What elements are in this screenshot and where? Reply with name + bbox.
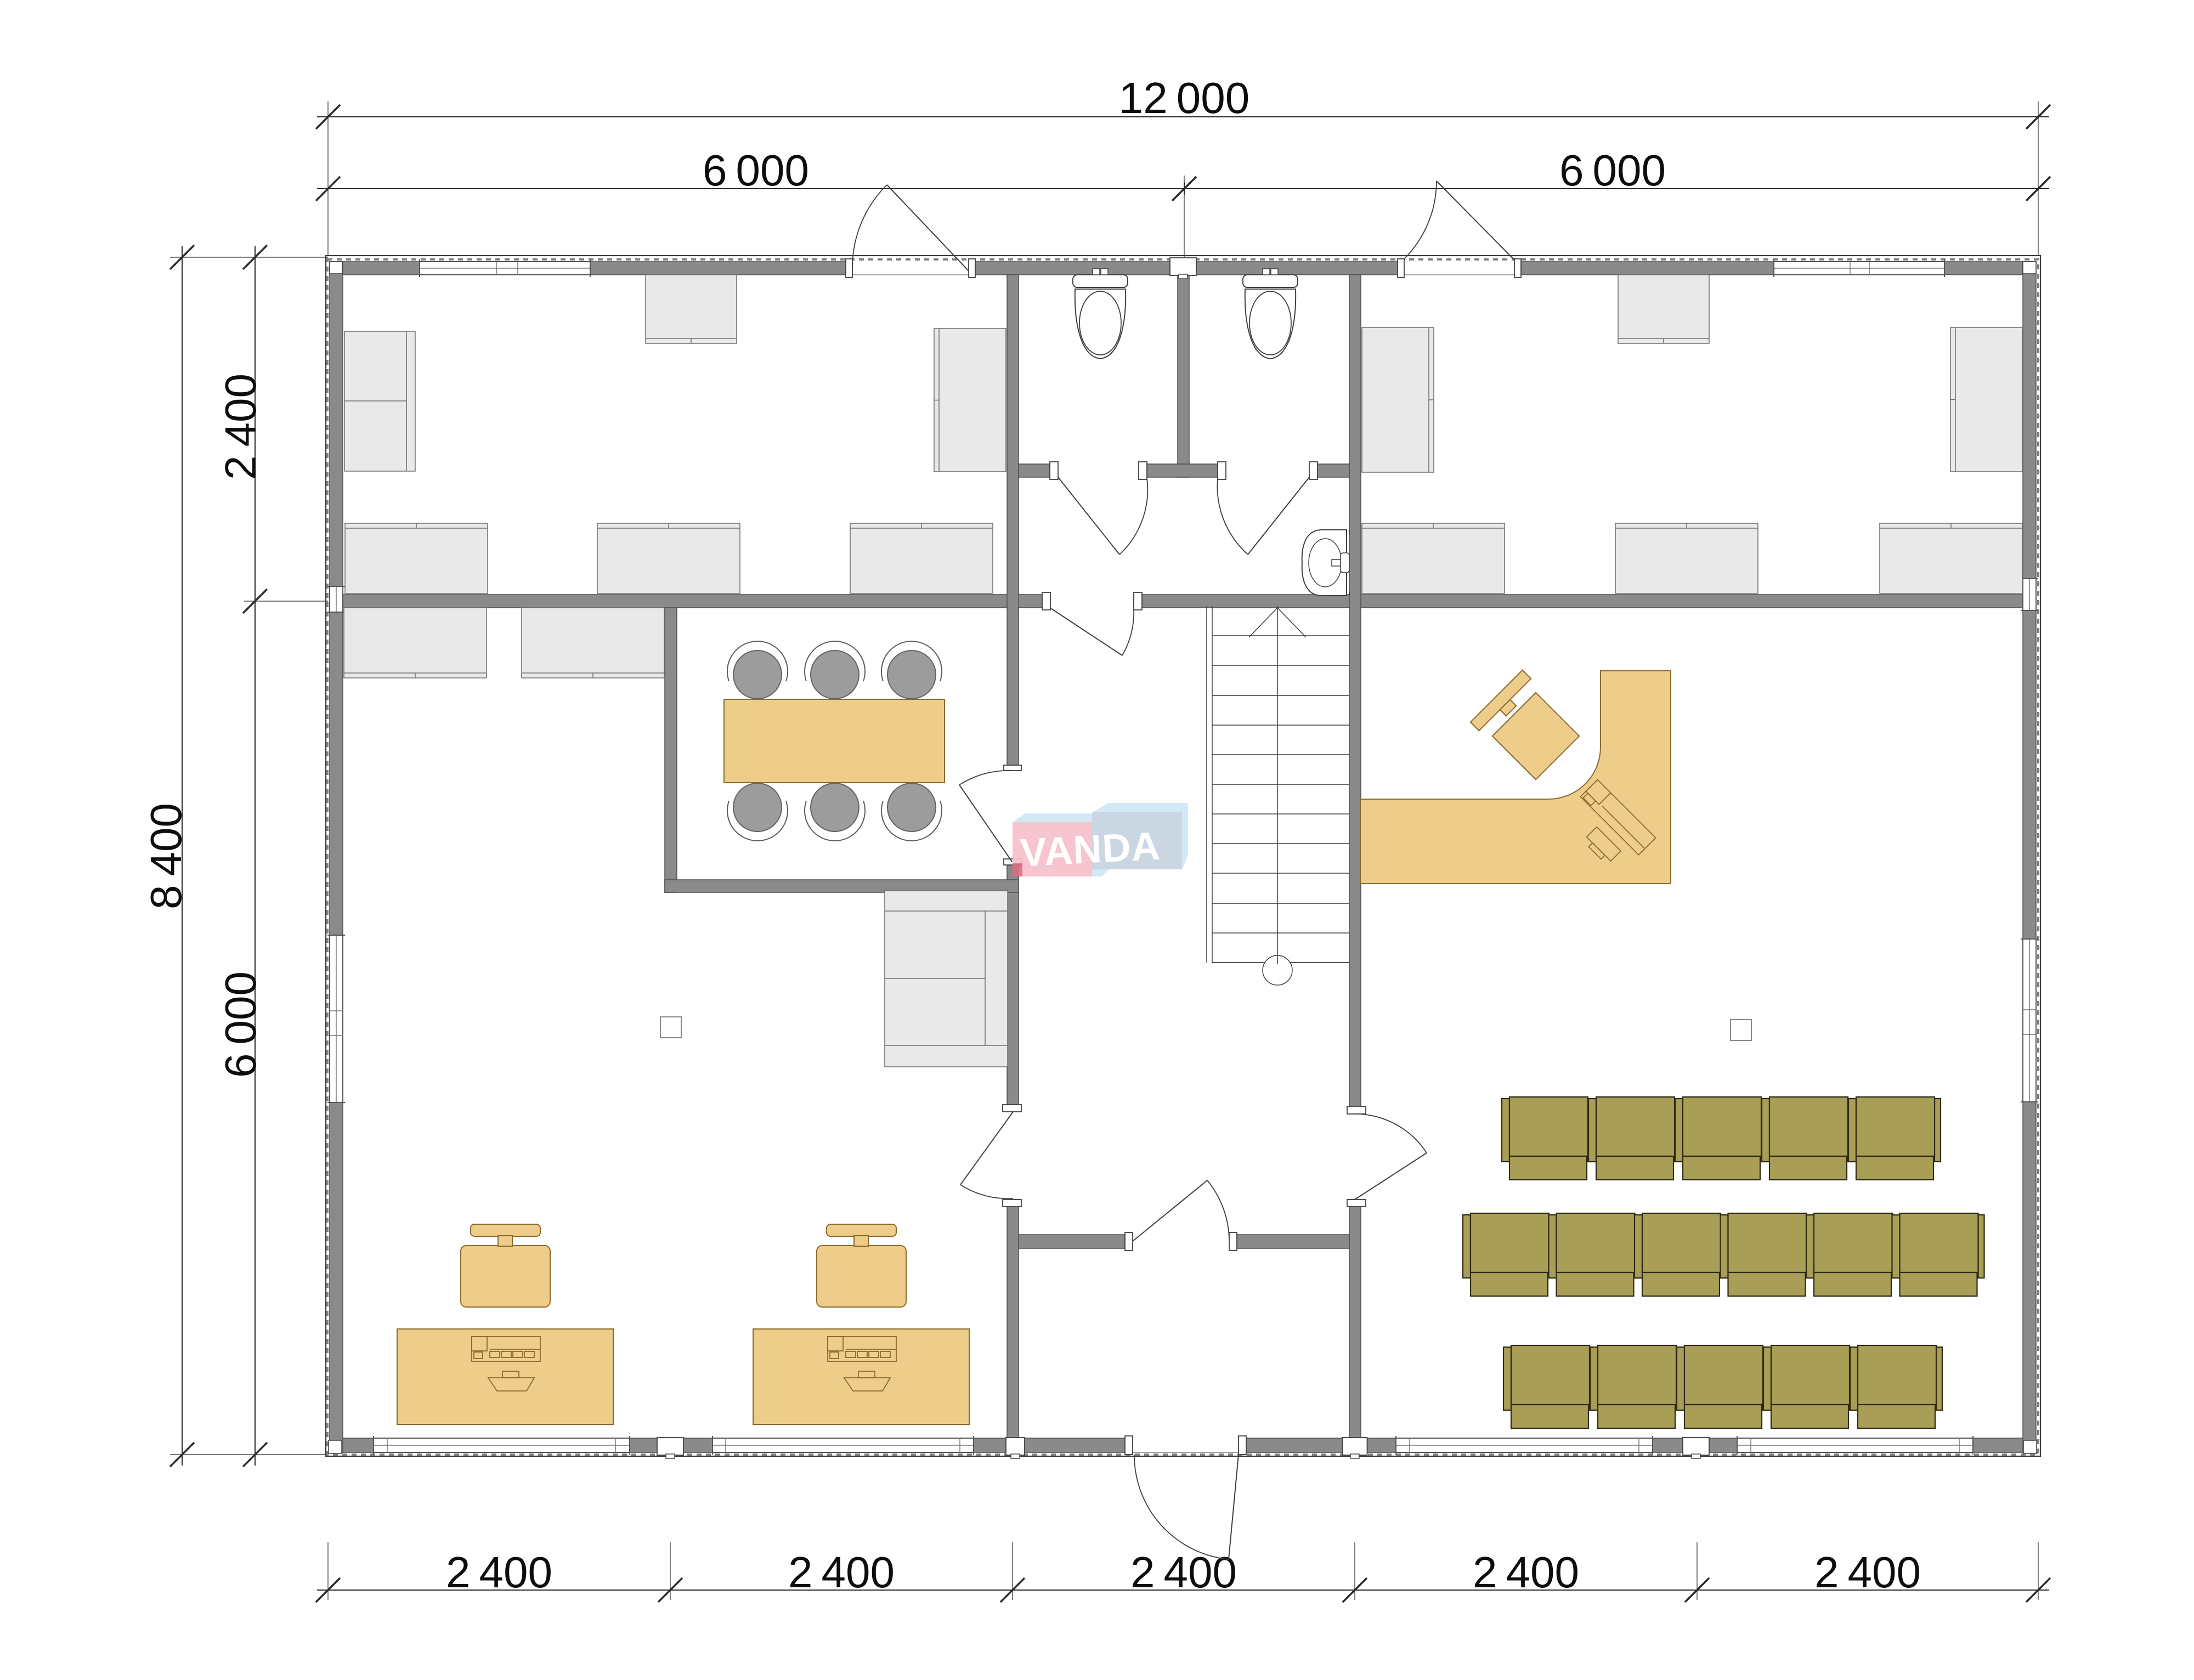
svg-text:6 000: 6 000	[1559, 146, 1666, 195]
svg-text:2 400: 2 400	[216, 374, 265, 480]
svg-text:6 000: 6 000	[216, 971, 265, 1078]
svg-text:8 400: 8 400	[142, 803, 190, 909]
svg-text:VANDA: VANDA	[1019, 824, 1162, 875]
svg-text:2 400: 2 400	[1814, 1548, 1921, 1597]
svg-text:2 400: 2 400	[1473, 1548, 1579, 1597]
svg-text:2 400: 2 400	[446, 1548, 552, 1597]
svg-text:2 400: 2 400	[1130, 1548, 1237, 1597]
svg-text:12 000: 12 000	[1119, 73, 1249, 122]
svg-text:6 000: 6 000	[703, 146, 809, 195]
svg-text:2 400: 2 400	[788, 1548, 895, 1597]
